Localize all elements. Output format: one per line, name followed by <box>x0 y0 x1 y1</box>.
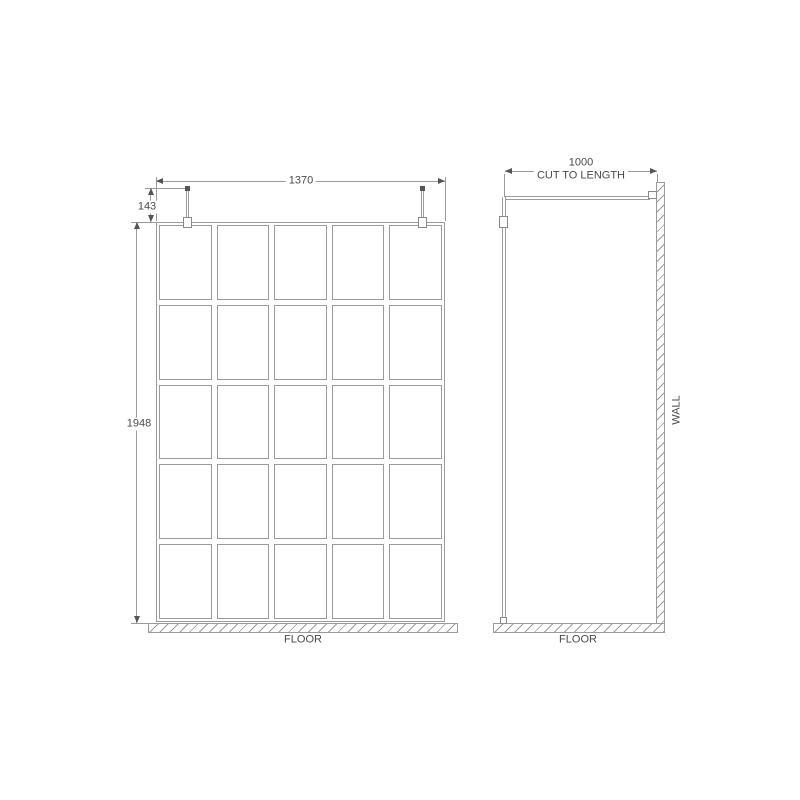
glass-pane <box>389 225 442 300</box>
glass-clamp-side <box>499 216 508 228</box>
glass-panel-side <box>502 197 506 623</box>
technical-drawing-canvas: 1370 143 1948 FLOOR <box>0 0 800 800</box>
support-post-left <box>186 190 189 218</box>
glass-pane <box>217 305 270 380</box>
glass-pane <box>389 464 442 539</box>
floor-front <box>148 623 458 633</box>
depth-note-label: CUT TO LENGTH <box>534 170 628 183</box>
support-post-left-clamp <box>183 217 192 228</box>
glass-pane <box>217 464 270 539</box>
glass-pane <box>217 544 270 619</box>
glass-pane <box>274 305 327 380</box>
glass-pane <box>332 464 385 539</box>
glass-pane <box>389 385 442 460</box>
glass-pane <box>389 305 442 380</box>
dim-arrow-left-icon <box>156 178 163 184</box>
glass-pane <box>274 544 327 619</box>
glass-pane <box>274 225 327 300</box>
support-post-left-cap <box>185 186 190 191</box>
wall-mount-bracket <box>648 191 657 199</box>
glass-pane <box>332 225 385 300</box>
glass-pane <box>159 225 212 300</box>
ext-line-width-right <box>445 177 446 221</box>
dim-arrow-left-icon <box>505 168 512 174</box>
support-post-right-cap <box>420 186 425 191</box>
support-arm <box>504 196 650 200</box>
ext-line-depth-right <box>657 174 658 182</box>
glass-pane <box>159 305 212 380</box>
glass-pane <box>159 385 212 460</box>
floor-label-side: FLOOR <box>557 634 599 647</box>
glass-pane <box>217 385 270 460</box>
floor-label-front: FLOOR <box>282 634 324 647</box>
dim-arrow-up-icon <box>148 188 154 195</box>
floor-side <box>493 623 665 633</box>
glass-pane <box>274 385 327 460</box>
ext-line-depth-left <box>504 174 505 196</box>
wall <box>656 182 665 633</box>
front-grid <box>159 225 442 619</box>
width-dim-label: 1370 <box>286 175 316 188</box>
support-post-right <box>421 190 424 218</box>
glass-pane <box>159 544 212 619</box>
glass-panel-front <box>156 222 445 622</box>
wall-label: WALL <box>671 393 684 427</box>
floor-seal-side <box>500 617 507 624</box>
glass-pane <box>389 544 442 619</box>
dim-arrow-down-icon <box>134 616 140 623</box>
glass-pane <box>332 385 385 460</box>
dim-arrow-up-icon <box>134 222 140 229</box>
glass-pane <box>274 464 327 539</box>
height-dim-label: 1948 <box>124 418 154 431</box>
dim-arrow-down-icon <box>148 215 154 222</box>
glass-pane <box>332 544 385 619</box>
dim-arrow-right-icon <box>650 168 657 174</box>
glass-pane <box>217 225 270 300</box>
support-post-right-clamp <box>418 217 427 228</box>
depth-dim-label: 1000 <box>567 157 595 170</box>
glass-pane <box>332 305 385 380</box>
bracket-dim-label: 143 <box>135 201 159 214</box>
glass-pane <box>159 464 212 539</box>
dim-arrow-right-icon <box>438 178 445 184</box>
